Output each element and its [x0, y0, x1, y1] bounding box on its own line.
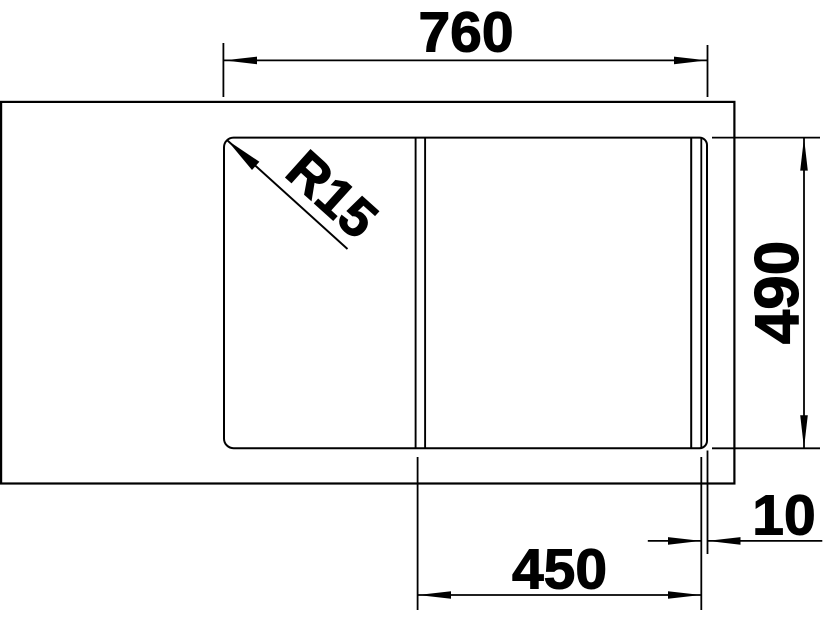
svg-text:760: 760	[418, 1, 513, 65]
svg-text:490: 490	[743, 241, 812, 344]
svg-text:10: 10	[752, 484, 815, 548]
svg-text:450: 450	[512, 538, 607, 602]
